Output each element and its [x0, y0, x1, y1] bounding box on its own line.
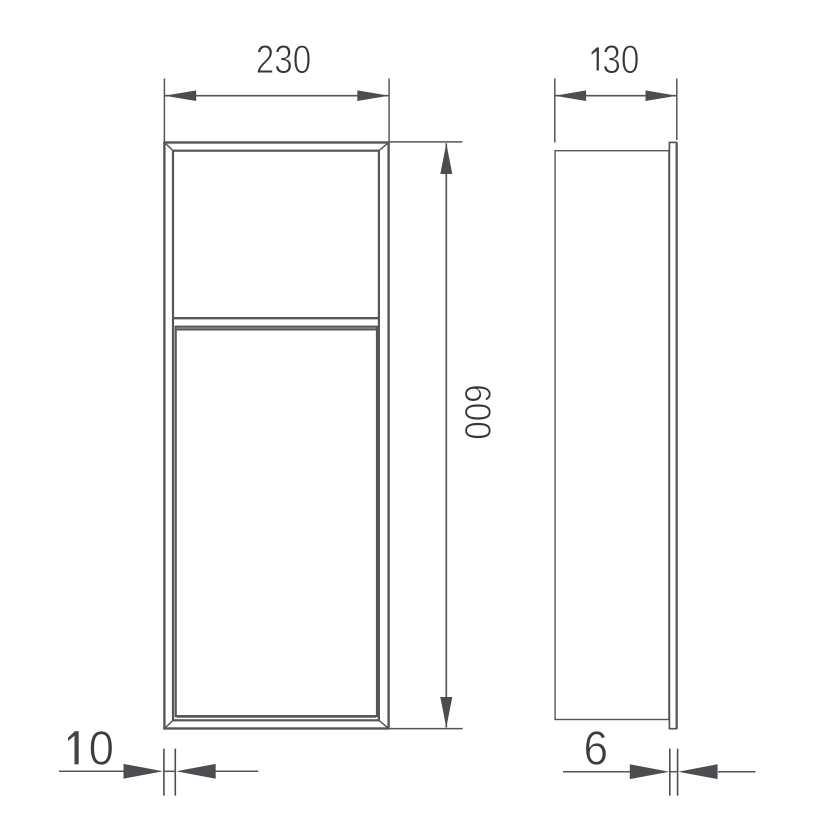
- svg-text:230: 230: [256, 37, 312, 82]
- svg-text:6: 6: [584, 721, 609, 775]
- svg-text:600: 600: [457, 384, 498, 440]
- svg-text:0: 0: [89, 721, 114, 774]
- svg-text:30: 30: [602, 37, 639, 82]
